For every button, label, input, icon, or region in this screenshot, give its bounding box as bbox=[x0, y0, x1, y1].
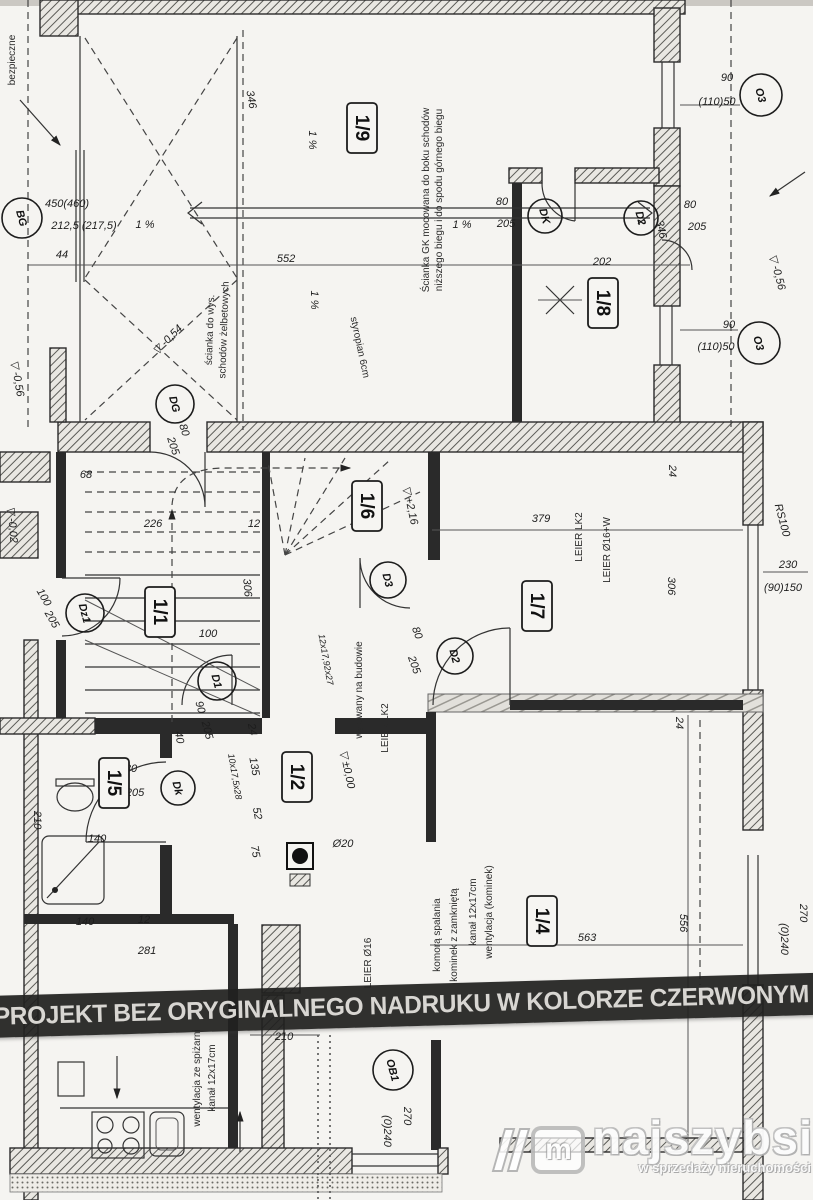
svg-text:(0)240: (0)240 bbox=[778, 923, 790, 956]
room-label: 1/7 bbox=[522, 581, 552, 631]
logo-brand-text: najszybsi bbox=[592, 1116, 813, 1161]
door-window-tag: DG bbox=[156, 385, 194, 423]
svg-text:kanał 12x17cm: kanał 12x17cm bbox=[207, 1044, 218, 1111]
svg-text:80: 80 bbox=[496, 196, 509, 208]
svg-text:wentylacja ze spiżarni: wentylacja ze spiżarni bbox=[192, 1029, 203, 1127]
dim-text: 80 bbox=[684, 199, 697, 211]
logo-slashes-icon bbox=[498, 1128, 524, 1172]
door-window-tag: OB1 bbox=[373, 1050, 413, 1090]
dim-text: RS100 bbox=[772, 502, 793, 538]
dim-text: Ø20 bbox=[332, 838, 355, 850]
svg-text:1/7: 1/7 bbox=[526, 593, 547, 619]
svg-text:205: 205 bbox=[405, 653, 423, 676]
svg-text:346: 346 bbox=[243, 89, 258, 110]
svg-text:140: 140 bbox=[76, 916, 95, 928]
dim-text: 140 bbox=[88, 833, 107, 845]
svg-text:D2: D2 bbox=[632, 210, 647, 227]
room-label: 1/6 bbox=[352, 481, 382, 531]
dim-text: 450(460) bbox=[45, 198, 89, 210]
dim-text: 306 bbox=[240, 578, 254, 598]
dim-text: 270 bbox=[797, 903, 809, 923]
dim-text: 1 % bbox=[453, 219, 472, 231]
svg-text:556: 556 bbox=[677, 914, 689, 933]
dim-text: 563 bbox=[578, 932, 597, 944]
dim-text: 306 bbox=[665, 577, 677, 596]
room-label: 1/5 bbox=[99, 758, 129, 808]
dim-text: 346 bbox=[243, 89, 258, 110]
note-text: wentylacja ze spiżarni bbox=[192, 1029, 203, 1127]
note-text: LEIER Ø16+W bbox=[602, 517, 613, 583]
svg-text:1/1: 1/1 bbox=[149, 599, 170, 626]
svg-text:210: 210 bbox=[31, 810, 43, 830]
dim-text: 12x17,92x27 bbox=[317, 633, 336, 686]
svg-text:DK: DK bbox=[536, 207, 552, 226]
dim-text: 205 bbox=[496, 218, 516, 230]
svg-text:O3: O3 bbox=[750, 335, 765, 352]
dim-text: (110)50 bbox=[697, 341, 735, 353]
svg-text:(90)150: (90)150 bbox=[764, 582, 803, 594]
dim-text: 379 bbox=[532, 513, 550, 525]
svg-text:44: 44 bbox=[56, 249, 68, 261]
svg-text:90: 90 bbox=[723, 319, 736, 331]
dim-text: 80 bbox=[409, 625, 425, 641]
svg-text:niższego biegu i do spodu górn: niższego biegu i do spodu górnego biegu bbox=[434, 109, 445, 291]
svg-text:1 %: 1 % bbox=[306, 131, 318, 150]
dim-text: 44 bbox=[56, 249, 68, 261]
level-text: ▽ -0,56 bbox=[8, 359, 26, 398]
dim-text: 270 bbox=[401, 1106, 413, 1126]
note-text: niższego biegu i do spodu górnego biegu bbox=[434, 109, 445, 291]
logo-text-block: najszybsi w sprzedaży nieruchomości bbox=[592, 1116, 813, 1175]
svg-text:205: 205 bbox=[41, 608, 62, 632]
svg-text:80: 80 bbox=[176, 422, 191, 438]
svg-text:LEIER Ø16+W: LEIER Ø16+W bbox=[602, 517, 613, 583]
dim-text: 24 bbox=[673, 716, 685, 729]
note-text: kanał 12x17cm bbox=[207, 1044, 218, 1111]
note-text: wentylacja (kominek) bbox=[484, 865, 495, 959]
dim-text: 210 bbox=[274, 1031, 294, 1043]
level-text: ▽ -0,54 bbox=[151, 323, 185, 357]
svg-text:205: 205 bbox=[687, 221, 707, 233]
svg-text:226: 226 bbox=[143, 518, 163, 530]
svg-text:1/6: 1/6 bbox=[356, 493, 377, 519]
note-text: schodów żelbetowych bbox=[217, 281, 231, 379]
note-text: kominek z zamkniętą bbox=[449, 888, 460, 982]
door-window-tag: Dk bbox=[161, 771, 195, 805]
svg-text:1/2: 1/2 bbox=[286, 764, 307, 790]
room-label: 1/2 bbox=[282, 752, 312, 802]
svg-text:ścianka do wys.: ścianka do wys. bbox=[204, 294, 217, 365]
svg-text:212,5 (217,5): 212,5 (217,5) bbox=[50, 220, 117, 232]
svg-text:210: 210 bbox=[274, 1031, 294, 1043]
dim-text: 100 bbox=[34, 587, 54, 610]
dim-text: 202 bbox=[592, 256, 611, 268]
svg-text:1 %: 1 % bbox=[136, 219, 155, 231]
svg-text:D1: D1 bbox=[208, 673, 223, 690]
svg-text:▽ -0,56: ▽ -0,56 bbox=[8, 359, 26, 398]
svg-text:52: 52 bbox=[250, 806, 264, 820]
najszybsi-logo: m najszybsi w sprzedaży nieruchomości bbox=[498, 1116, 813, 1175]
dim-text: 1 % bbox=[136, 219, 155, 231]
svg-text:▽ -0,56: ▽ -0,56 bbox=[766, 253, 787, 292]
svg-text:12: 12 bbox=[248, 518, 260, 530]
note-text: kanał 12x17cm bbox=[468, 878, 479, 945]
svg-text:LEIER LK2: LEIER LK2 bbox=[574, 512, 585, 562]
dim-text: (110)50 bbox=[698, 96, 736, 108]
svg-text:LEIER Ø16: LEIER Ø16 bbox=[363, 937, 374, 988]
svg-text:Dk: Dk bbox=[169, 780, 184, 798]
dim-text: 140 bbox=[76, 916, 95, 928]
svg-text:24: 24 bbox=[666, 464, 678, 477]
svg-text:kominek z zamkniętą: kominek z zamkniętą bbox=[449, 888, 460, 982]
svg-text:RS100: RS100 bbox=[772, 502, 793, 538]
svg-text:100: 100 bbox=[34, 587, 54, 610]
note-text: ścianka do wys. bbox=[204, 294, 217, 365]
dim-text: 10x17,5x28 bbox=[226, 753, 244, 801]
svg-text:306: 306 bbox=[665, 577, 677, 596]
note-text: styropian 6cm bbox=[348, 316, 372, 379]
dim-text: 552 bbox=[277, 253, 295, 265]
dim-text: 210 bbox=[31, 810, 43, 830]
svg-text:wylewany na budowie: wylewany na budowie bbox=[354, 641, 365, 740]
dim-text: 212,5 (217,5) bbox=[50, 220, 117, 232]
svg-text:Dz1: Dz1 bbox=[76, 602, 93, 624]
dim-text: 80 bbox=[176, 422, 191, 438]
dim-text: 205 bbox=[687, 221, 707, 233]
svg-text:24: 24 bbox=[673, 716, 685, 729]
svg-text:(0)240: (0)240 bbox=[381, 1115, 393, 1148]
note-text: Ścianka GK mocowana do boku schodów bbox=[419, 107, 432, 292]
svg-text:80: 80 bbox=[409, 625, 425, 641]
room-label: 1/8 bbox=[588, 278, 618, 328]
svg-text:281: 281 bbox=[137, 945, 156, 957]
note-text: LEIER LK2 bbox=[574, 512, 585, 562]
room-label: 1/1 bbox=[145, 587, 175, 637]
svg-text:schodów żelbetowych: schodów żelbetowych bbox=[217, 281, 231, 379]
note-text: wylewany na budowie bbox=[354, 641, 365, 740]
dim-text: 90 bbox=[721, 72, 734, 84]
dim-text: 68 bbox=[80, 469, 93, 481]
svg-text:379: 379 bbox=[532, 513, 550, 525]
svg-text:24: 24 bbox=[245, 721, 259, 736]
dim-text: 75 bbox=[248, 844, 262, 859]
svg-text:BG: BG bbox=[13, 209, 29, 228]
note-text: komorą spalania bbox=[432, 898, 443, 972]
door-window-tag: BG bbox=[2, 198, 42, 238]
level-text: ▽ ±0,00 bbox=[337, 749, 357, 790]
svg-text:1/5: 1/5 bbox=[103, 770, 124, 797]
svg-text:75: 75 bbox=[248, 844, 262, 859]
note-text: bezpieczne bbox=[7, 34, 18, 85]
svg-text:140: 140 bbox=[88, 833, 107, 845]
svg-text:135: 135 bbox=[246, 756, 261, 777]
svg-text:(110)50: (110)50 bbox=[698, 96, 736, 108]
dim-text: (0)240 bbox=[778, 923, 790, 956]
level-text: ▽ +2,16 bbox=[400, 485, 420, 527]
svg-text:80: 80 bbox=[684, 199, 697, 211]
dim-text: 80 bbox=[496, 196, 509, 208]
dim-text: 1 % bbox=[306, 131, 318, 150]
dim-text: (90)150 bbox=[764, 582, 803, 594]
svg-text:1/9: 1/9 bbox=[351, 115, 372, 141]
svg-text:552: 552 bbox=[277, 253, 295, 265]
svg-text:40: 40 bbox=[172, 730, 186, 745]
svg-text:styropian 6cm: styropian 6cm bbox=[348, 316, 372, 379]
svg-text:563: 563 bbox=[578, 932, 597, 944]
room-label: 1/9 bbox=[347, 103, 377, 153]
dim-text: 40 bbox=[172, 730, 186, 745]
dim-text: 281 bbox=[137, 945, 156, 957]
svg-text:202: 202 bbox=[592, 256, 611, 268]
door-window-tag: Dz1 bbox=[66, 594, 104, 632]
svg-text:Ø20: Ø20 bbox=[332, 838, 355, 850]
svg-text:DG: DG bbox=[166, 395, 182, 414]
svg-text:D2: D2 bbox=[446, 648, 461, 665]
scanned-floorplan-page: { "banner": { "text": "PROJEKT BEZ ORYGI… bbox=[0, 0, 813, 1200]
svg-text:68: 68 bbox=[80, 469, 93, 481]
svg-text:230: 230 bbox=[778, 559, 798, 571]
svg-text:D3: D3 bbox=[379, 572, 394, 589]
svg-text:10x17,5x28: 10x17,5x28 bbox=[226, 753, 244, 801]
dim-text: 52 bbox=[250, 806, 264, 820]
dim-text: 24 bbox=[666, 464, 678, 477]
svg-text:(110)50: (110)50 bbox=[697, 341, 735, 353]
dim-text: 556 bbox=[677, 914, 689, 933]
svg-text:1 %: 1 % bbox=[308, 291, 320, 310]
svg-text:wentylacja (kominek): wentylacja (kominek) bbox=[484, 865, 495, 959]
door-window-tag: O3 bbox=[738, 322, 780, 364]
svg-text:1/8: 1/8 bbox=[592, 290, 613, 316]
svg-text:270: 270 bbox=[797, 903, 809, 923]
svg-text:kanał 12x17cm: kanał 12x17cm bbox=[468, 878, 479, 945]
dim-text: 1 % bbox=[308, 291, 320, 310]
dim-text: 90 bbox=[723, 319, 736, 331]
dim-text: 205 bbox=[405, 653, 423, 676]
dim-text: 12 bbox=[248, 518, 260, 530]
svg-text:1 %: 1 % bbox=[453, 219, 472, 231]
svg-text:450(460): 450(460) bbox=[45, 198, 89, 210]
svg-text:270: 270 bbox=[401, 1106, 413, 1126]
svg-text:12: 12 bbox=[138, 914, 150, 926]
svg-text:306: 306 bbox=[240, 578, 254, 598]
note-text: LEIER Ø16 bbox=[363, 937, 374, 988]
logo-monogram-icon: m bbox=[531, 1126, 585, 1174]
logo-tagline-text: w sprzedaży nieruchomości bbox=[638, 1160, 813, 1175]
svg-text:100: 100 bbox=[199, 628, 218, 640]
dim-text: 12 bbox=[138, 914, 150, 926]
svg-text:90: 90 bbox=[721, 72, 734, 84]
dim-text: (0)240 bbox=[381, 1115, 393, 1148]
svg-text:▽ +2,16: ▽ +2,16 bbox=[400, 485, 420, 527]
svg-text:Ścianka GK mocowana do boku sc: Ścianka GK mocowana do boku schodów bbox=[419, 107, 432, 292]
door-window-tag: O3 bbox=[740, 74, 782, 116]
dim-text: 135 bbox=[246, 756, 261, 777]
dim-text: 226 bbox=[143, 518, 163, 530]
svg-text:komorą spalania: komorą spalania bbox=[432, 898, 443, 972]
logo-monogram-letter: m bbox=[545, 1133, 572, 1167]
door-window-tag: D2 bbox=[437, 638, 473, 674]
svg-text:bezpieczne: bezpieczne bbox=[7, 34, 18, 85]
note-text: LEIER LK2 bbox=[380, 703, 391, 753]
svg-text:▽ -0,54: ▽ -0,54 bbox=[151, 323, 185, 357]
door-window-tag: DK bbox=[528, 199, 562, 233]
svg-text:LEIER LK2: LEIER LK2 bbox=[380, 703, 391, 753]
svg-text:12x17,92x27: 12x17,92x27 bbox=[317, 633, 336, 686]
dim-text: 230 bbox=[778, 559, 798, 571]
room-label: 1/4 bbox=[527, 896, 557, 946]
dim-text: 205 bbox=[41, 608, 62, 632]
dim-text: 100 bbox=[199, 628, 218, 640]
door-window-tag: D3 bbox=[370, 562, 406, 598]
svg-text:▽ ±0,00: ▽ ±0,00 bbox=[337, 749, 357, 790]
svg-text:O3: O3 bbox=[752, 87, 767, 104]
svg-text:OB1: OB1 bbox=[383, 1058, 400, 1083]
dim-text: 24 bbox=[245, 721, 259, 736]
level-text: ▽ -0,56 bbox=[766, 253, 787, 292]
svg-text:205: 205 bbox=[496, 218, 516, 230]
svg-text:1/4: 1/4 bbox=[531, 908, 552, 935]
